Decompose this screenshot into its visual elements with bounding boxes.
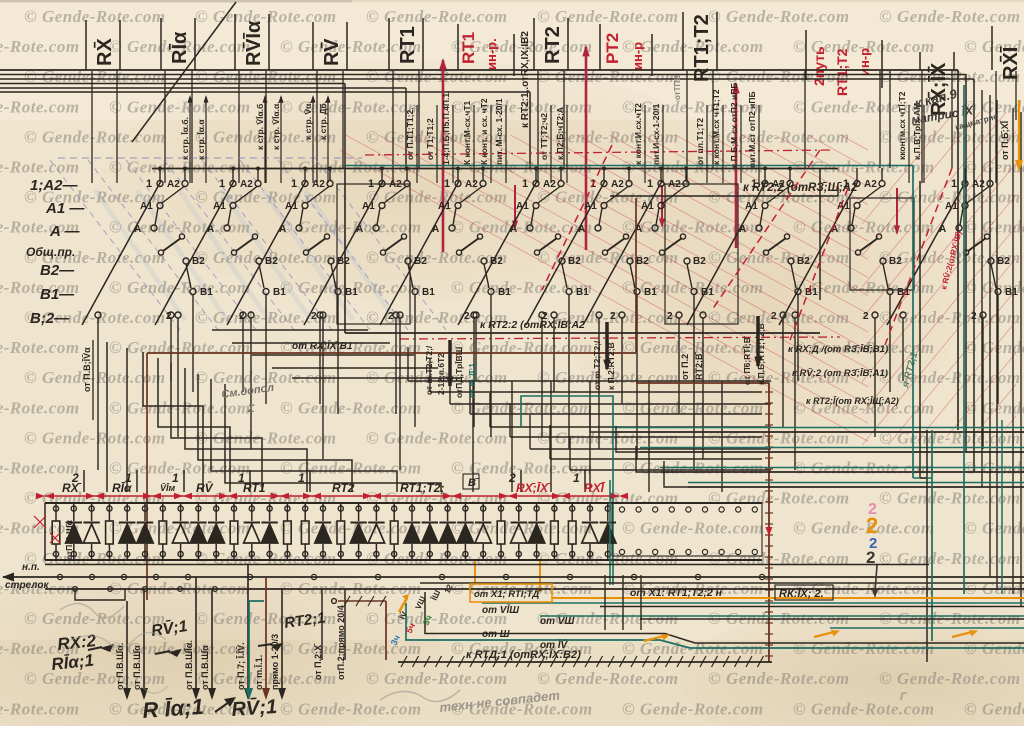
svg-text:© Gende-Rote.com: © Gende-Rote.com [879,669,1021,688]
svg-text:B1: B1 [644,287,657,298]
svg-text:B1: B1 [805,287,818,298]
svg-text:2-12;п.6Т2: 2-12;п.6Т2 [436,353,446,395]
svg-text:от X1: RT1;T2;2 н: от X1: RT1;T2;2 н [630,587,723,599]
svg-text:© Gende-Rote.com: © Gende-Rote.com [879,308,1021,327]
svg-text:к RT2;2 (отRЗ̄;Ш̄;А2: к RT2;2 (отRЗ̄;Ш̄;А2 [743,182,858,194]
svg-text:2путь: 2путь [811,46,827,86]
svg-text:2: 2 [508,471,516,485]
svg-text:к стр. Īα.б.: к стр. Īα.б. [180,117,190,160]
svg-text:от П.Т1;Т1;2.: от П.Т1;Т1;2. [405,107,415,160]
svg-text:© Gende-Rote.com: © Gende-Rote.com [964,519,1024,538]
svg-text:отП.2;прямо 20/4: отП.2;прямо 20/4 [336,605,346,680]
svg-text:© Gende-Rote.com: © Gende-Rote.com [0,699,80,718]
svg-text:RT1;T2: RT1;T2 [834,48,850,96]
svg-text:2: 2 [311,311,317,322]
svg-text:© Gende-Rote.com: © Gende-Rote.com [451,338,593,357]
svg-text:A2: A2 [240,179,253,190]
svg-text:B1: B1 [498,287,511,298]
svg-text:к П.Б;М-сх отП2 иПБ: к П.Б;М-сх отП2 иПБ [729,83,739,168]
svg-text:1: 1 [951,178,957,190]
svg-text:от ĪV̄: от ĪV̄ [540,639,569,651]
svg-text:B;2—: B;2— [30,310,70,327]
svg-text:к RT2:1,.отRX,IX;IВ̄2: к RT2:1,.отRX,IX;IВ̄2 [520,31,531,128]
svg-text:1: 1 [291,178,297,190]
svg-text:© Gende-Rote.com: © Gende-Rote.com [622,97,764,116]
svg-text:© Gende-Rote.com: © Gende-Rote.com [109,97,251,116]
svg-text:© Gende-Rote.com: © Gende-Rote.com [0,398,80,417]
svg-text:2: 2 [866,548,875,567]
svg-text:© Gende-Rote.com: © Gende-Rote.com [0,97,80,116]
svg-text:RT1;T2: RT1;T2 [691,14,713,82]
svg-text:© Gende-Rote.com: © Gende-Rote.com [451,218,593,237]
svg-text:RX̄: RX̄ [94,38,116,66]
svg-text:A2: A2 [611,179,624,190]
svg-text:1: 1 [146,178,152,190]
svg-text:от П.7; Ī̄.ĪV̄.: от П.7; Ī̄.ĪV̄. [236,642,246,690]
svg-text:© Gende-Rote.com: © Gende-Rote.com [793,519,935,538]
svg-text:© Gende-Rote.com: © Gende-Rote.com [280,699,422,718]
svg-text:© Gende-Rote.com: © Gende-Rote.com [0,158,80,177]
svg-text:пит.М.ст отП2 иПБ: пит.М.ст отП2 иПБ [747,91,757,168]
svg-text:н.п.: н.п. [22,562,40,573]
svg-text:A2: A2 [972,179,985,190]
svg-text:RV̄: RV̄ [196,481,214,495]
svg-text:Общ.пр.: Общ.пр. [26,245,75,259]
svg-text:© Gende-Rote.com: © Gende-Rote.com [366,248,508,267]
svg-text:RT2: RT2 [542,26,564,64]
svg-text:от П.Б̄;Х̄Ī: от П.Б̄;Х̄Ī [1000,120,1010,160]
svg-text:1: 1 [573,471,580,485]
svg-text:кконтм.сх чТĪ;Т2: кконтм.сх чТĪ;Т2 [897,91,907,160]
svg-text:A2: A2 [465,179,478,190]
svg-text:© Gende-Rote.com: © Gende-Rote.com [622,519,764,538]
svg-text:пит.И-сх-1-20/1: пит.И-сх-1-20/1 [651,103,661,165]
svg-text:от П.2: от П.2 [680,354,690,380]
svg-text:RT2: RT2 [332,481,355,495]
svg-text:B1: B1 [576,287,589,298]
svg-text:B2: B2 [414,256,427,267]
svg-text:ин-р.: ин-р. [484,38,499,70]
svg-text:RХ̄Ī: RХ̄Ī [584,481,606,495]
svg-text:от Т1;Т1;2: от Т1;Т1;2 [425,118,435,160]
svg-text:от ТТ;Т2;ч2: от ТТ;Т2;ч2 [539,113,549,160]
svg-text:стрелок: стрелок [5,580,49,591]
svg-text:RV̄Īα: RV̄Īα [243,20,265,66]
svg-text:© Gende-Rote.com: © Gende-Rote.com [964,398,1024,417]
svg-text:RĪα: RĪα [112,481,132,495]
svg-text:от П.В.Ш̄Īα.: от П.В.Ш̄Īα. [184,640,194,690]
svg-text:к стр. Īα.α: к стр. Īα.α [196,119,206,160]
svg-text:© Gende-Rote.com: © Gende-Rote.com [0,338,80,357]
svg-text:B2: B2 [797,256,810,267]
svg-text:к RT2:2 (отRХ̄;ĪВ̄;А2: к RT2:2 (отRХ̄;ĪВ̄;А2 [480,319,585,331]
svg-text:пит. М-сх. 1-20/1: пит. М-сх. 1-20/1 [494,98,504,165]
svg-text:© Gende-Rote.com: © Gende-Rote.com [879,7,1021,26]
svg-text:1;A2—: 1;A2— [30,177,79,194]
svg-text:© Gende-Rote.com: © Gende-Rote.com [793,699,935,718]
svg-text:от П.В.Ш̄α: от П.В.Ш̄α [200,645,210,690]
svg-text:A2: A2 [864,179,877,190]
svg-text:A2: A2 [543,179,556,190]
svg-text:к П.2:RT2;В̄: к П.2:RT2;В̄ [606,340,616,390]
svg-text:B1: B1 [345,287,358,298]
svg-text:2: 2 [863,311,869,322]
svg-text:B2: B2 [997,256,1010,267]
svg-text:© Gende-Rote.com: © Gende-Rote.com [280,97,422,116]
svg-text:к RХ̄;Д /(от RЗ̄;ĪВ̄;В1): к RХ̄;Д /(от RЗ̄;ĪВ̄;В1) [788,344,888,355]
svg-text:от VШ: от VШ [540,616,574,627]
svg-text:B2: B2 [192,256,205,267]
svg-text:© Gende-Rote.com: © Gende-Rote.com [537,7,679,26]
svg-text:RX̄Ī: RX̄Ī [1000,46,1022,80]
svg-text:к.П2;Б;чТ2;А: к.П2;Б;чТ2;А [555,107,565,160]
svg-text:© Gende-Rote.com: © Gende-Rote.com [366,669,508,688]
svg-text:© Gende-Rote.com: © Gende-Rote.com [708,248,850,267]
svg-text:B2: B2 [889,256,902,267]
svg-text:PT2: PT2 [603,33,622,64]
svg-text:B1: B1 [1005,287,1018,298]
svg-text:2: 2 [971,311,977,322]
svg-text:A1 —: A1 — [45,200,85,217]
svg-text:B1: B1 [273,287,286,298]
svg-text:от П.2;Х̄: от П.2;Х̄ [313,643,323,680]
svg-text:© Gende-Rote.com: © Gende-Rote.com [280,158,422,177]
svg-text:© Gende-Rote.com: © Gende-Rote.com [708,669,850,688]
svg-text:1: 1 [522,178,528,190]
svg-text:отПД;ТрĪВ̄Ш: отПД;ТрĪВ̄Ш [454,347,464,398]
svg-text:к.П.Б;RT1;T2;В: к.П.Б;RT1;T2;В [756,323,766,385]
svg-text:RT2;В̄: RT2;В̄ [694,352,704,380]
svg-text:от П̄6;RTĪ;В̄: от П̄6;RTĪ;В̄ [742,335,752,385]
svg-text:© Gende-Rote.com: © Gende-Rote.com [708,7,850,26]
svg-text:к конт.И.сх.чТ2: к конт.И.сх.чТ2 [633,103,643,165]
svg-text:RT1: RT1 [397,26,419,64]
svg-text:RV̄;1: RV̄;1 [231,696,278,721]
svg-text:© Gende-Rote.com: © Gende-Rote.com [879,489,1021,508]
svg-text:к стр. Д̄б.: к стр. Д̄б. [318,101,328,140]
svg-text:A2: A2 [167,179,180,190]
svg-text:1: 1 [647,178,653,190]
svg-text:B2: B2 [568,256,581,267]
svg-text:отТПВ: отТПВ [673,75,682,100]
svg-text:© Gende-Rote.com: © Gende-Rote.com [622,158,764,177]
svg-text:от пл.Т1;Т2: от пл.Т1;Т2 [695,118,705,165]
svg-text:К конт.М-сх.чТ1: К конт.М-сх.чТ1 [462,100,472,165]
svg-text:© Gende-Rote.com: © Gende-Rote.com [195,7,337,26]
svg-text:к конт.М.сх чТ1;Т2: к конт.М.сх чТ1;Т2 [711,89,721,165]
svg-text:к стр. V̄α.: к стр. V̄α. [303,101,313,140]
svg-text:© Gende-Rote.com: © Gende-Rote.com [280,639,422,658]
svg-text:© Gende-Rote.com: © Gende-Rote.com [622,699,764,718]
svg-text:© Gende-Rote.com: © Gende-Rote.com [24,368,166,387]
svg-text:от m.Т2;Т2;/: от m.Т2;Т2;/ [592,340,602,390]
svg-text:RV̄: RV̄ [321,38,343,66]
svg-text:2: 2 [771,311,777,322]
svg-text:1-4;П.Б;П5.П.4П.1.: 1-4;П.Б;П5.П.4П.1. [441,91,451,165]
svg-text:RT1: RT1 [243,481,266,495]
svg-text:B2: B2 [693,256,706,267]
svg-text:B2—: B2— [40,262,75,279]
svg-text:от m.Т2;Т2;/: от m.Т2;Т2;/ [424,345,434,395]
svg-text:от П.В.Ш̄α.: от П.В.Ш̄α. [115,643,125,690]
svg-text:© Gende-Rote.com: © Gende-Rote.com [109,398,251,417]
svg-text:RT1: RT1 [459,32,478,64]
svg-text:© Gende-Rote.com: © Gende-Rote.com [964,699,1024,718]
svg-text:к стр. V̄Īα.α.: к стр. V̄Īα.α. [271,101,281,150]
svg-text:© Gende-Rote.com: © Gende-Rote.com [109,639,251,658]
svg-text:1: 1 [219,178,225,190]
svg-text:к RV̄;2 (от RЗ̄;ĪВ̄;А1): к RV̄;2 (от RЗ̄;ĪВ̄;А1) [792,368,888,379]
svg-text:© Gende-Rote.com: © Gende-Rote.com [366,428,508,447]
svg-text:B1: B1 [422,287,435,298]
svg-text:© Gende-Rote.com: © Gende-Rote.com [964,158,1024,177]
svg-text:B2: B2 [265,256,278,267]
svg-text:V̄Īм: V̄Īм [160,483,176,493]
svg-text:RT1;T2;: RT1;T2; [400,481,444,495]
svg-text:© Gende-Rote.com: © Gende-Rote.com [24,127,166,146]
svg-text:B1—: B1— [40,286,75,303]
svg-text:© Gende-Rote.com: © Gende-Rote.com [0,459,80,478]
svg-text:ин-р: ин-р [630,42,645,70]
svg-text:к стр. V̄Īα.б: к стр. V̄Īα.б [255,104,265,150]
svg-text:от Ш: от Ш [482,629,510,640]
svg-text:RХ̄;ĪХ̄: RХ̄;ĪХ̄ [516,481,551,495]
svg-text:1: 1 [298,471,305,485]
svg-text:© Gende-Rote.com: © Gende-Rote.com [0,37,80,56]
svg-text:© Gende-Rote.com: © Gende-Rote.com [708,489,850,508]
svg-text:2: 2 [667,311,673,322]
svg-text:© Gende-Rote.com: © Gende-Rote.com [109,338,251,357]
svg-text:2: 2 [610,311,616,322]
svg-text:ин-р: ин-р [857,48,872,76]
svg-text:© Gende-Rote.com: © Gende-Rote.com [537,669,679,688]
svg-text:© Gende-Rote.com: © Gende-Rote.com [451,459,593,478]
svg-text:от RХ̄;ĪХ̄;В1: от RХ̄;ĪХ̄;В1 [292,340,353,352]
svg-text:© Gende-Rote.com: © Gende-Rote.com [24,7,166,26]
svg-text:R Īα;1: R Īα;1 [142,694,205,723]
svg-text:от X1; RTĪ;TД̄: от X1; RTĪ;TД̄ [474,589,542,600]
svg-text:от П.В;ĪV̄α: от П.В;ĪV̄α [82,347,92,392]
svg-text:от П.В.Ш̄α: от П.В.Ш̄α [132,645,142,690]
svg-text:© Gende-Rote.com: © Gende-Rote.com [451,158,593,177]
svg-text:B2: B2 [636,256,649,267]
svg-text:к RT2;Ī(от RХ̄;ĪЩ̄;А2): к RT2;Ī(от RХ̄;ĪЩ̄;А2) [806,396,899,406]
svg-text:Σ: Σ [247,403,255,415]
svg-text:от VĪШ: от VĪШ [482,604,519,616]
svg-text:RК:ĪХ̄; 2.: RК:ĪХ̄; 2. [779,588,824,600]
svg-text:B1: B1 [200,287,213,298]
svg-text:1: 1 [444,178,450,190]
svg-text:© Gende-Rote.com: © Gende-Rote.com [366,7,508,26]
svg-text:прямо 1-20/3: прямо 1-20/3 [270,634,280,690]
svg-text:К конт. и сх. чТ2: К конт. и сх. чТ2 [479,98,489,165]
svg-text:A2: A2 [312,179,325,190]
svg-text:A —: A — [49,223,80,240]
svg-text:от m.Ī.1.: от m.Ī.1. [254,655,264,690]
svg-text:© Gende-Rote.com: © Gende-Rote.com [24,428,166,447]
svg-text:от m.Д̄;1: от m.Д̄;1 [467,363,477,398]
svg-text:RĪα: RĪα [169,31,191,64]
